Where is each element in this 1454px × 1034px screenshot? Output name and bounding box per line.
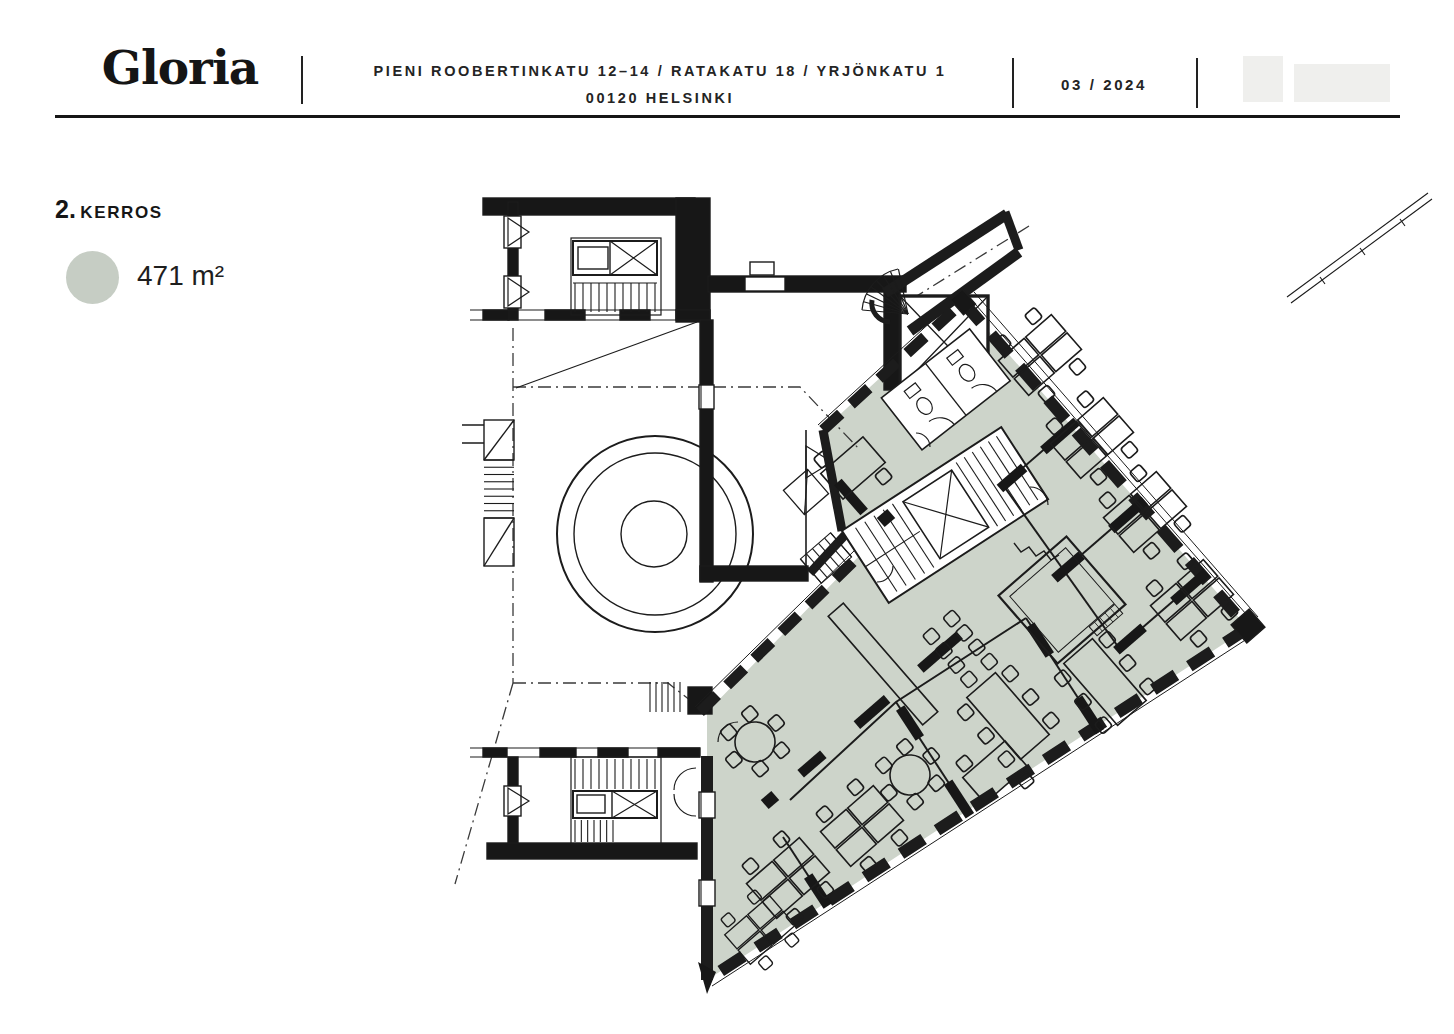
neighbor-building-line: [1287, 193, 1432, 303]
stairwell-bottom-left: [470, 748, 700, 859]
courtyard-circle: [557, 436, 753, 632]
sight-line: [516, 322, 697, 388]
stairwell-top-left: [470, 198, 710, 322]
floor-plan: [0, 0, 1454, 1034]
courtyard-stairs-left: [462, 420, 514, 566]
